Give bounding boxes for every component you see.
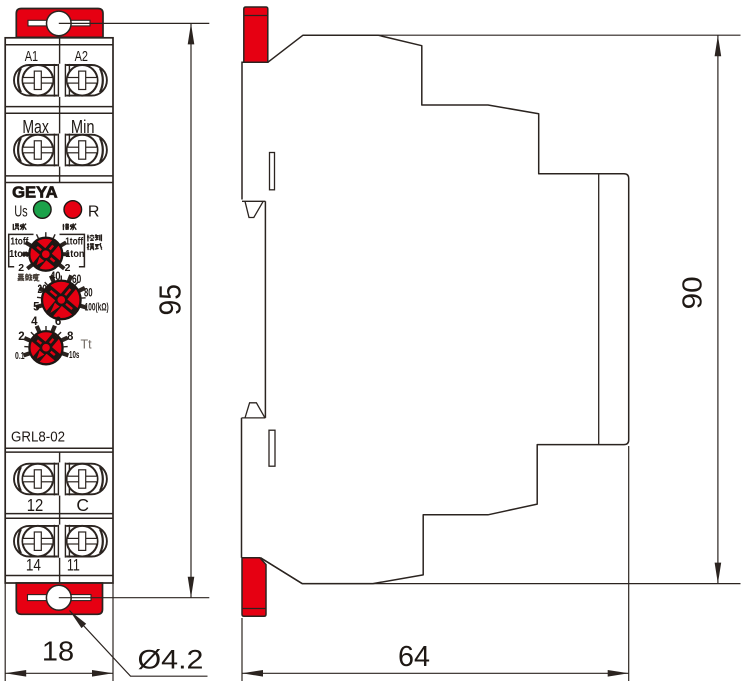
svg-text:1toff: 1toff — [65, 236, 83, 248]
svg-text:64: 64 — [398, 641, 430, 673]
svg-text:12: 12 — [27, 495, 44, 515]
svg-text:Min: Min — [71, 117, 95, 137]
svg-text:1ton: 1ton — [65, 248, 84, 260]
svg-text:40: 40 — [50, 271, 61, 283]
svg-text:C: C — [76, 495, 89, 515]
svg-text:GRL8-02: GRL8-02 — [11, 429, 65, 445]
svg-text:80: 80 — [84, 287, 93, 299]
svg-text:R: R — [88, 204, 100, 221]
svg-text:100(kΩ): 100(kΩ) — [85, 301, 109, 313]
svg-text:Us: Us — [14, 204, 28, 221]
svg-text:A1: A1 — [25, 48, 38, 65]
svg-text:11: 11 — [67, 555, 80, 574]
svg-text:20: 20 — [38, 284, 47, 296]
svg-text:0.1: 0.1 — [15, 350, 25, 362]
svg-text:8: 8 — [67, 331, 74, 343]
svg-text:14: 14 — [26, 555, 41, 574]
svg-text:60: 60 — [72, 274, 81, 286]
svg-text:Max: Max — [22, 117, 49, 137]
svg-text:2: 2 — [18, 331, 24, 343]
svg-text:2: 2 — [65, 262, 71, 274]
svg-text:A2: A2 — [75, 48, 88, 65]
svg-text:6: 6 — [55, 316, 61, 328]
svg-text:1ton: 1ton — [9, 248, 28, 260]
svg-text:2: 2 — [18, 262, 24, 274]
svg-text:4: 4 — [31, 316, 38, 328]
svg-text:GEYA: GEYA — [12, 184, 58, 201]
svg-text:5: 5 — [33, 301, 40, 313]
svg-text:18: 18 — [42, 635, 74, 666]
svg-text:Tt: Tt — [80, 337, 92, 351]
svg-text:90: 90 — [676, 276, 707, 309]
svg-text:95: 95 — [153, 284, 188, 316]
svg-text:1toff: 1toff — [10, 236, 28, 248]
svg-text:10s: 10s — [69, 349, 79, 361]
svg-text:Ø4.2: Ø4.2 — [138, 644, 204, 674]
